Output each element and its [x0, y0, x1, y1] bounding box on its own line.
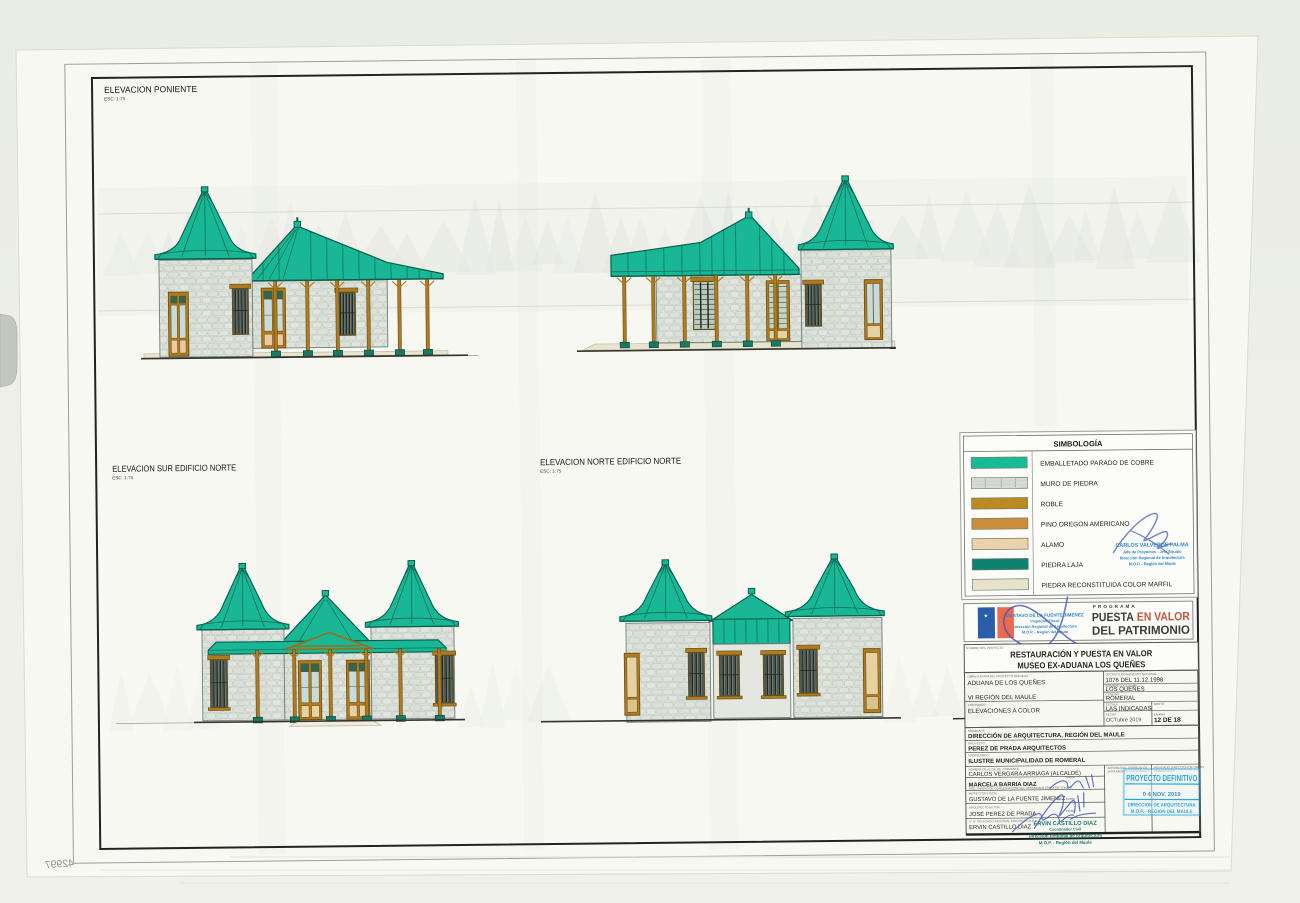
svg-text:JOSÉ PEREZ DE PRADA: JOSÉ PEREZ DE PRADA [969, 810, 1037, 818]
svg-text:Coordinador Civil: Coordinador Civil [1049, 827, 1081, 831]
svg-text:ADUANA DE LOS QUEÑES: ADUANA DE LOS QUEÑES [968, 679, 1046, 687]
svg-text:PROYECTO DEFINITIVO: PROYECTO DEFINITIVO [1126, 773, 1197, 783]
svg-text:ELEVACION PONIENTE: ELEVACION PONIENTE [104, 84, 197, 95]
svg-text:Dirección Regional de Arquitec: Dirección Regional de Arquitectura [1029, 833, 1103, 839]
svg-text:M.O.P. - Región del Maule: M.O.P. - Región del Maule [1129, 561, 1177, 567]
svg-text:ESC: 1:75: ESC: 1:75 [540, 468, 561, 473]
svg-text:ALAMO: ALAMO [1041, 542, 1064, 549]
svg-text:GUSTAVO DE LA FUENTE JIMENEZ: GUSTAVO DE LA FUENTE JIMENEZ [969, 796, 1066, 803]
svg-text:DECRETO MONUMENTO NACIONAL: DECRETO MONUMENTO NACIONAL [1105, 672, 1157, 677]
svg-text:PINO OREGON AMERICANO: PINO OREGON AMERICANO [1041, 521, 1130, 529]
svg-text:PEREZ DE PRADA ARQUITECTOS: PEREZ DE PRADA ARQUITECTOS [968, 746, 1066, 753]
svg-text:ELEVACION SUR EDIFICIO NORTE: ELEVACION SUR EDIFICIO NORTE [112, 462, 236, 473]
svg-text:OBRA O ETAPA DEL PROYECTO ORIG: OBRA O ETAPA DEL PROYECTO ORIGINAL [967, 674, 1028, 679]
svg-text:ELEVACION NORTE EDIFICIO NORTE: ELEVACION NORTE EDIFICIO NORTE [540, 456, 681, 468]
svg-text:SIMBOLOGÍA: SIMBOLOGÍA [1053, 439, 1103, 449]
svg-text:12 DE 18: 12 DE 18 [1154, 717, 1181, 724]
svg-text:M.O.P. - REGION DEL MAULE: M.O.P. - REGION DEL MAULE [1131, 809, 1194, 815]
svg-text:PIEDRA LAJA: PIEDRA LAJA [1041, 562, 1083, 569]
svg-text:ROBLE: ROBLE [1041, 501, 1064, 508]
svg-text:GUSTAVO DE LA FUENTE JIMENEZ: GUSTAVO DE LA FUENTE JIMENEZ [1006, 612, 1084, 618]
svg-text:ERVIN CASTILLO DIAZ: ERVIN CASTILLO DIAZ [1033, 821, 1097, 828]
svg-text:Dirección Regional de Arquitec: Dirección Regional de Arquitectura [1120, 555, 1186, 561]
svg-text:OCTubre 2019: OCTubre 2019 [1106, 717, 1142, 723]
svg-text:MUSEO EX-ADUANA LOS QUEÑES: MUSEO EX-ADUANA LOS QUEÑES [1017, 659, 1145, 670]
svg-text:DEL PATRIMONIO: DEL PATRIMONIO [1092, 623, 1190, 638]
svg-text:EMBALLETADO PARADO DE COBRE: EMBALLETADO PARADO DE COBRE [1040, 460, 1154, 468]
svg-text:ESC: 1:75: ESC: 1:75 [104, 96, 125, 101]
svg-text:42997: 42997 [44, 857, 74, 871]
svg-text:DIRECCION DE ARQUITECTURA: DIRECCION DE ARQUITECTURA [1128, 802, 1196, 808]
svg-text:MURO DE PIEDRA: MURO DE PIEDRA [1040, 480, 1098, 488]
svg-text:PIEDRA RECONSTITUIDA COLOR MAR: PIEDRA RECONSTITUIDA COLOR MARFIL [1041, 581, 1172, 589]
svg-text:ELEVACIONES A COLOR: ELEVACIONES A COLOR [968, 707, 1041, 715]
svg-text:0 4 NOV. 2019: 0 4 NOV. 2019 [1143, 792, 1182, 798]
svg-text:EN VALOR: EN VALOR [1137, 609, 1190, 624]
svg-text:NOMBRE DEL PROYECTO: NOMBRE DEL PROYECTO [966, 646, 1004, 650]
svg-text:FECHA: FECHA [1106, 712, 1116, 716]
svg-text:NORTE: NORTE [1154, 702, 1164, 706]
svg-text:PROPIETARIO: PROPIETARIO [968, 753, 989, 757]
svg-text:PUESTA: PUESTA [1092, 610, 1134, 624]
svg-text:PROYECTO: PROYECTO [968, 741, 985, 745]
svg-text:RESTAURACIÓN Y PUESTA EN VALOR: RESTAURACIÓN Y PUESTA EN VALOR [1010, 647, 1153, 660]
svg-text:INSPECTOR FISCAL: INSPECTOR FISCAL [969, 791, 998, 795]
svg-text:VI REGIÓN DEL MAULE: VI REGIÓN DEL MAULE [968, 694, 1037, 702]
svg-text:ERVIN CASTILLO DIAZ: ERVIN CASTILLO DIAZ [969, 824, 1032, 831]
svg-text:Dirección Regional de Arquitec: Dirección Regional de Arquitectura [1013, 624, 1077, 629]
svg-text:LÁMINA: LÁMINA [1154, 712, 1165, 716]
svg-text:FIRMA: FIRMA [1066, 775, 1075, 779]
svg-text:PROGRAMA: PROGRAMA [1093, 604, 1136, 609]
svg-text:ESC: 1:75: ESC: 1:75 [112, 475, 133, 480]
svg-text:MANDANTE: MANDANTE [968, 729, 985, 733]
svg-text:★: ★ [984, 613, 989, 619]
svg-text:CARLOS VERGARA ARRIAGA (ALCALD: CARLOS VERGARA ARRIAGA (ALCALDE) [969, 771, 1082, 778]
svg-text:CONTENIDO: CONTENIDO [968, 703, 987, 707]
svg-text:Jefe de Proyectos - Jefe Equip: Jefe de Proyectos - Jefe Equipo [1123, 549, 1182, 555]
svg-text:M.O.P. - Región del Maule: M.O.P. - Región del Maule [1039, 840, 1093, 846]
svg-text:ARQUITECTO AUTOR: ARQUITECTO AUTOR [969, 805, 1001, 809]
svg-text:ROMERAL: ROMERAL [1106, 696, 1136, 702]
svg-text:ILUSTRE MUNICIPALIDAD DE ROMER: ILUSTRE MUNICIPALIDAD DE ROMERAL [968, 758, 1085, 765]
